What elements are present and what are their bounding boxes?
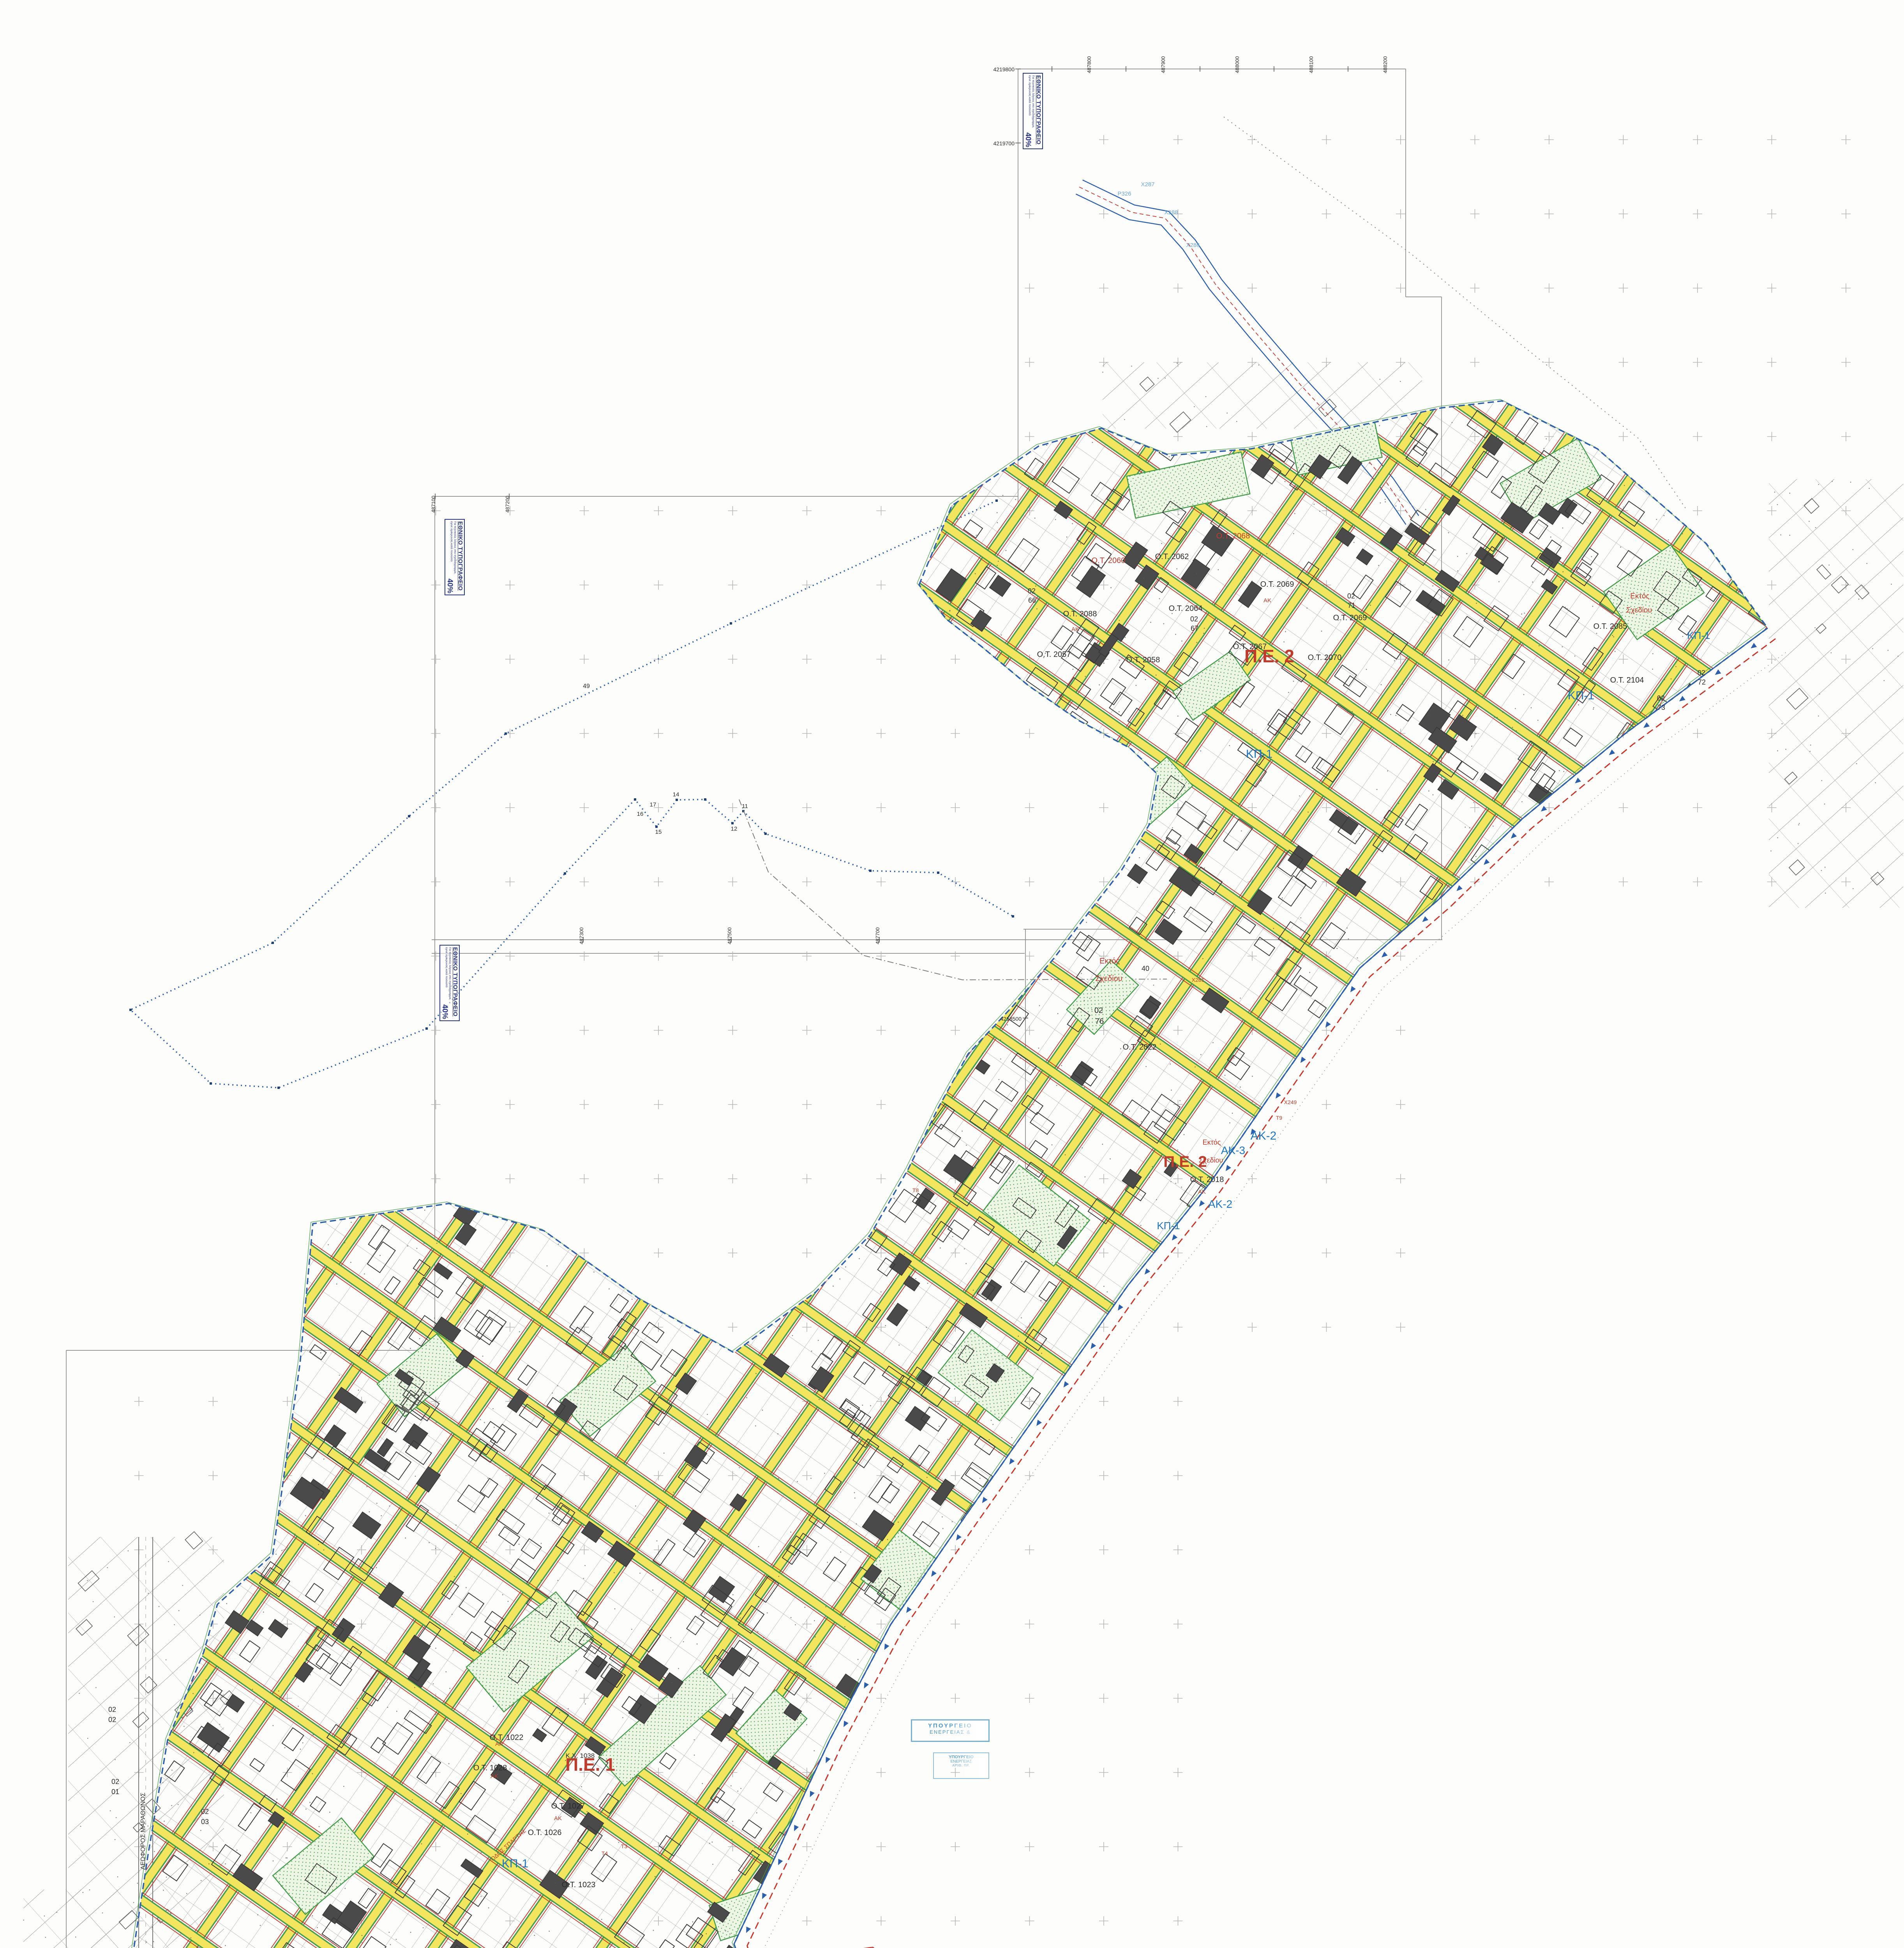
map-label: 487900 [1160,56,1166,73]
map-label: 14 [673,791,679,798]
stamp-fade-overlay [912,1720,988,1741]
map-label: Ο.Τ. 2057 [1037,650,1071,659]
map-label: ΑΚ-2 [1208,1198,1232,1210]
map-label: Ο.Τ. 1023 [562,1881,596,1889]
map-label: Ο.Τ. 2018 [1190,1175,1224,1184]
map-label: ΛΕΩΦΟΡΟΣ ΜΑΡΑΘΩΝΟΣ [140,1793,146,1870]
map-label: Χ281 [1192,977,1205,983]
map-label: 15 [655,829,662,835]
map-label: 488100 [1308,56,1314,73]
stamp-percent: 40% [440,1004,449,1019]
stamp-percent: 40% [1023,132,1032,147]
map-label: Ο.Τ. 2104 [1610,676,1644,685]
ministry-stamp-small: ΥΠΟΥΡΓΕΙΟ ΕΝΕΡΓΕΙΑΣ ΑΡΙΘ. ΠΡ. [933,1752,989,1779]
map-label: 40 [1142,965,1149,972]
map-label: 73 [1657,704,1665,711]
stamp-note-1: Για τεχνικούς λόγους στο σχεδιάγραμμα, [1032,75,1035,147]
map-label: 488000 [1234,56,1240,73]
map-label: Ο.Τ. 2085 [1593,622,1627,631]
map-label: Τ3 [621,1843,628,1849]
map-label: 11 [742,803,748,810]
map-label: Ο.Τ. 2064 [1169,604,1203,613]
map-label: 02 [111,1778,119,1786]
map-label: Ο.Τ. 2069 [1260,580,1294,589]
map-label: Τ4 [602,1850,608,1856]
map-label: 02 [1094,1006,1103,1015]
map-label: 02 [108,1716,116,1724]
map-label: 4219700 [993,140,1015,146]
stamp-note-1: Για τεχνικούς λόγους στο σχεδιάγραμμα, [454,521,457,593]
map-label: ΚΠ-1 [1157,1220,1180,1232]
map-label: 487300 [579,927,584,944]
map-label: ΑΚ [554,1815,562,1822]
map-label: 03 [201,1818,209,1826]
map-label: Σχεδίου [1199,1156,1223,1164]
map-label: Τ9 [1276,1115,1283,1121]
stamp-title: ΕΘΝΙΚΟ ΤΥΠΟΓΡΑΦΕΙΟ [457,521,464,593]
map-label: 02 [201,1808,209,1816]
urban-plan-band [0,0,1904,1948]
map-label: 487100 [431,496,436,512]
map-label: 487800 [1086,56,1092,73]
map-label: 02 [1028,587,1036,595]
stamp-title: ΕΘΝΙΚΟ ΤΥΠΟΓΡΑΦΕΙΟ [452,947,459,1019]
map-label: ΚΠ-1 [1568,689,1594,702]
map-label: 487700 [875,927,881,944]
map-label: Ο.Τ. 2088 [1063,610,1097,618]
map-label: Χ249 [1284,1099,1297,1105]
stamp-percent: 40% [445,579,454,593]
map-label: ΑΚ [1198,1189,1206,1195]
map-label: ΚΠ-1 [1246,748,1272,760]
map-label: 02 [1698,669,1705,677]
stamp-note-1: Για τεχνικούς λόγους στο σχεδιάγραμμα, [448,947,452,1019]
map-label: Ο.Τ. 2069 [1333,614,1367,622]
map-label: Χ286 [1186,242,1200,249]
map-label: 17 [650,801,656,808]
map-label: 01 [111,1788,119,1796]
map-label: 67 [1191,625,1198,632]
map-label: Τ8 [912,1187,919,1193]
map-label: Κ.Χ. 1038 [566,1752,595,1759]
map-label: Εκτός [1099,957,1120,965]
map-label: ΑΚ-2 [1251,1129,1277,1142]
national-printing-stamp-left-lower: ΕΘΝΙΚΟ ΤΥΠΟΓΡΑΦΕΙΟ Για τεχνικούς λόγους … [439,945,460,1021]
map-label: 4218500 [1000,1016,1022,1022]
cadastral-map-canvas: Π.Ε. 2Π.Ε. 2Π.Ε. 1ΚΠ-1ΚΠ-1ΚΠ-1ΚΠ-1ΚΠ-1ΑΚ… [0,0,1904,1948]
map-label: ΑΚ-3 [1221,1144,1245,1156]
map-label: 02 [1347,592,1355,600]
map-label: ΑΚ [495,1741,503,1747]
map-label: Εκτός [1203,1138,1221,1146]
map-label: 487200 [505,496,510,512]
map-label: Εκτός [1630,592,1649,600]
national-printing-stamp-top: ΕΘΝΙΚΟ ΤΥΠΟΓΡΑΦΕΙΟ Για τεχνικούς λόγους … [1023,73,1043,149]
map-label: Σχεδίου [1095,974,1122,983]
map-label: 02 [108,1706,116,1713]
map-label: 66 [1028,596,1036,604]
map-label: ΑΚ [491,1773,498,1780]
map-label: Ο.Τ. 1022 [490,1733,524,1742]
map-label: 12 [731,826,738,832]
map-label: Ο.Τ. 1028 [473,1764,507,1772]
map-label: ΑΚ [1071,626,1079,633]
map-label: 76 [1095,1017,1104,1026]
map-label: Ο.Τ. 2062 [1155,552,1189,561]
stamp-title: ΕΘΝΙΚΟ ΤΥΠΟΓΡΑΦΕΙΟ [1035,75,1042,147]
map-label: Ρ326 [1117,191,1131,197]
map-label: ΑΚ [1263,597,1271,604]
map-label: Ο.Τ. 2067 [1233,642,1267,651]
map-label: ΚΠ-1 [502,1857,528,1870]
map-label: 72 [1698,678,1706,686]
map-label: 71 [1348,602,1355,609]
map-label: Χ287 [1141,181,1154,188]
map-label: 02 [1190,615,1198,623]
map-label: Ο.Τ. 2068 [1216,532,1250,540]
stamp-fade-overlay [934,1753,988,1778]
map-label: Ο.Τ. 1027 [551,1802,585,1810]
map-label: 02 [1657,694,1665,702]
map-label: 49 [583,683,590,690]
ministry-stamp-large: ΥΠΟΥΡΓΕΙΟ ΕΝΕΡΓΕΙΑΣ & [911,1719,990,1742]
map-label: 4219800 [993,66,1015,72]
map-label: Ο.Τ. 2058 [1126,656,1160,664]
map-label: Ο.Τ. 2060 [1092,556,1126,565]
map-label: Χ288 [1164,209,1178,216]
map-label: 488200 [1382,56,1388,73]
map-labels: Π.Ε. 2Π.Ε. 2Π.Ε. 1ΚΠ-1ΚΠ-1ΚΠ-1ΚΠ-1ΚΠ-1ΑΚ… [108,56,1710,1948]
map-label: Ο.Τ. 1026 [528,1828,562,1837]
map-label: Σχεδίου [1626,606,1652,614]
scanned-cadastral-map-page: Π.Ε. 2Π.Ε. 2Π.Ε. 1ΚΠ-1ΚΠ-1ΚΠ-1ΚΠ-1ΚΠ-1ΑΚ… [0,0,1904,1948]
map-label: Ο.Τ. 2070 [1308,653,1342,662]
map-label: 487500 [727,927,732,944]
map-label: 16 [637,811,644,817]
map-label: ΚΠ-1 [1687,630,1710,641]
national-printing-stamp-left-upper: ΕΘΝΙΚΟ ΤΥΠΟΓΡΑΦΕΙΟ Για τεχνικούς λόγους … [445,519,465,595]
map-label: Ο.Τ. 2022 [1123,1043,1157,1052]
